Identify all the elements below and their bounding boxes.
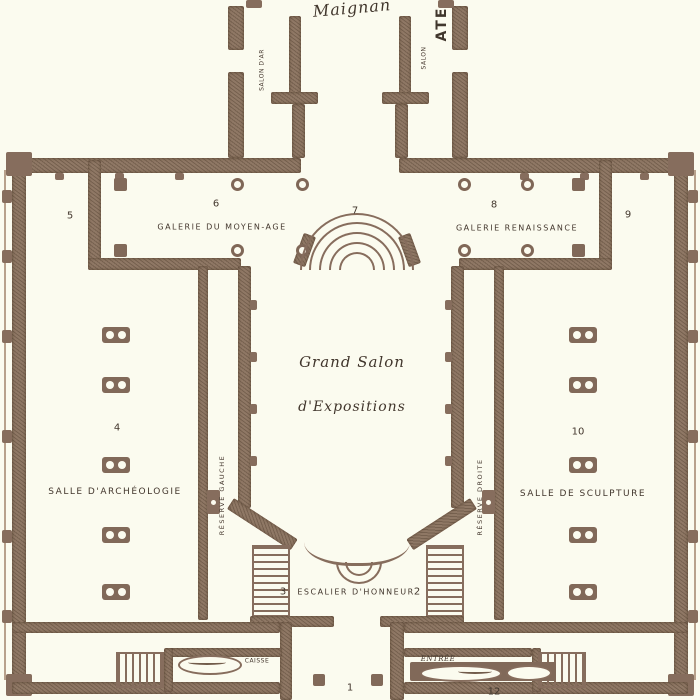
pilaster [445,300,452,310]
wall-segment [599,160,612,270]
wall-segment [404,622,688,633]
column-pair [102,527,130,543]
wall-stub [246,0,262,8]
column-pair [569,584,597,600]
pilaster [250,456,257,466]
pilaster [688,190,698,203]
wall-segment [452,6,468,50]
pilaster [250,352,257,362]
room-number-3: 3 [280,587,286,598]
room-number-1: 1 [347,683,353,694]
wall-segment [451,266,464,508]
pilaster [2,610,12,623]
wall-segment [12,622,280,633]
desk-squiggle [458,669,492,674]
wall-segment [227,498,298,550]
pilaster [445,352,452,362]
wall-segment [406,498,477,550]
caisse-desk [178,655,242,675]
wall-segment [88,258,241,270]
pier-marker [114,178,127,191]
pilaster [688,610,698,623]
wall-segment [271,92,318,104]
column-marker [521,178,534,191]
pilaster [640,173,649,180]
room-number-4: 4 [114,423,120,434]
label-salle-sculpture: SALLE DE SCULPTURE [520,489,646,499]
entree-counter [506,665,552,681]
pilaster [445,404,452,414]
stair-arc [336,562,382,584]
label-salle-archeologie: SALLE D'ARCHÉOLOGIE [48,487,181,497]
pilaster [175,173,184,180]
wall-segment [382,92,429,104]
label-grand-salon-1: Grand Salon [299,353,405,371]
corner-pier [6,152,32,176]
wall-segment [12,158,301,173]
room-number-6: 6 [213,199,219,210]
pilaster [250,300,257,310]
niche-hole [486,500,491,505]
pilaster [2,190,12,203]
fan-stairs [300,213,414,270]
pilaster [688,530,698,543]
wall-segment [452,72,468,158]
label-galerie-moyen-age: GALERIE DU MOYEN-AGE [157,223,286,232]
label-escalier-honneur: ESCALIER D'HONNEUR [297,588,414,597]
niche-hole [211,500,216,505]
room-number-10: 10 [572,427,585,438]
wall-segment [674,158,688,688]
wall-segment [228,72,244,158]
wall-segment [198,266,208,620]
wall-segment [88,160,101,270]
column-marker [521,244,534,257]
wall-segment [494,266,504,620]
room-number-8: 8 [491,200,497,211]
column-marker [458,244,471,257]
pilaster [2,530,12,543]
wall-segment [292,104,305,158]
label-salon-art: SALON D'AR [259,49,266,91]
pier-marker [371,674,383,686]
room-number-7: 7 [352,206,358,217]
pilaster [445,456,452,466]
room-number-12: 12 [488,687,501,698]
label-reserve-gauche: RÉSERVE GAUCHE [218,455,226,535]
column-pair [102,584,130,600]
room-number-2: 2 [414,587,420,598]
label-salon-right: SALON [421,47,428,70]
entree-counter [420,665,502,682]
wall-segment [395,104,408,158]
room-number-9: 9 [625,210,631,221]
wall-segment [289,16,301,96]
pilaster [250,404,257,414]
outer-line [694,170,696,680]
pilaster [2,430,12,443]
corner-pier [668,152,694,176]
wall-segment [459,258,612,270]
outer-line [4,170,6,680]
room-number-5: 5 [67,211,73,222]
wall-segment [12,158,26,688]
pilaster [688,430,698,443]
label-entree: ENTRÉE [421,655,455,663]
stair-flight [116,652,164,688]
column-marker [231,178,244,191]
label-grand-salon-2: d'Expositions [298,399,406,415]
column-pair [102,457,130,473]
column-marker [458,178,471,191]
pier-marker [572,178,585,191]
wall-segment [390,622,404,700]
wall-segment [399,16,411,96]
pilaster [688,250,698,263]
column-pair [569,527,597,543]
pilaster [2,250,12,263]
desk-squiggle [188,660,226,665]
column-marker [296,178,309,191]
column-pair [102,327,130,343]
pier-marker [114,244,127,257]
wall-segment [164,648,173,692]
label-maignan: Maignan [312,0,392,21]
label-galerie-renaissance: GALERIE RENAISSANCE [456,224,578,233]
wall-segment [280,622,292,700]
column-marker [231,244,244,257]
label-reserve-droite: RÉSERVE DROITE [476,458,484,535]
column-pair [569,457,597,473]
label-atelier: ATE [434,7,450,42]
column-pair [569,377,597,393]
label-caisse: CAISSE [245,658,269,665]
pier-marker [572,244,585,257]
column-pair [102,377,130,393]
wall-segment [228,6,244,50]
stair-flight [252,545,290,617]
pilaster [688,330,698,343]
pier-marker [313,674,325,686]
pilaster [55,173,64,180]
stair-flight [426,545,464,617]
floor-plan: Maignan SALON D'AR SALON ATE 5 6 7 8 9 4… [0,0,700,700]
wall-segment [399,158,688,173]
column-pair [569,327,597,343]
pilaster [2,330,12,343]
